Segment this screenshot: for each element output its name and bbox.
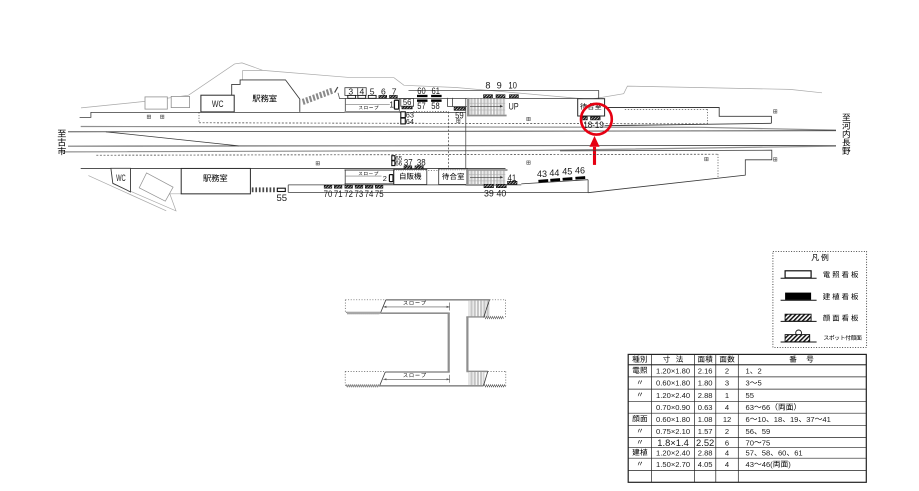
svg-text:6: 6	[746, 415, 750, 424]
svg-text:39: 39	[484, 188, 494, 198]
svg-text:10: 10	[757, 415, 765, 424]
svg-text:12: 12	[723, 415, 731, 424]
svg-text:4: 4	[725, 460, 729, 469]
svg-text:63: 63	[746, 403, 754, 412]
svg-text:3: 3	[725, 379, 729, 388]
svg-text:1: 1	[746, 367, 750, 376]
svg-text:60: 60	[778, 449, 786, 458]
svg-text:61: 61	[794, 449, 802, 458]
svg-text:0.63: 0.63	[698, 403, 713, 412]
svg-text:4.05: 4.05	[698, 460, 713, 469]
svg-text:44: 44	[549, 168, 559, 178]
svg-text:18-19: 18-19	[583, 119, 604, 130]
svg-text:70: 70	[324, 189, 333, 199]
svg-text:3: 3	[746, 379, 750, 388]
svg-text:66: 66	[762, 403, 770, 412]
svg-text:59: 59	[762, 427, 770, 436]
svg-text:4: 4	[725, 449, 729, 458]
svg-text:10: 10	[508, 80, 517, 90]
svg-text:2: 2	[757, 367, 761, 376]
svg-text:0.60×1.80: 0.60×1.80	[656, 415, 690, 424]
svg-text:0.70×0.90: 0.70×0.90	[656, 403, 690, 412]
svg-text:6: 6	[725, 438, 729, 447]
svg-text:1.80: 1.80	[698, 379, 713, 388]
svg-text:WC: WC	[212, 99, 224, 109]
svg-text:1.08: 1.08	[698, 415, 713, 424]
svg-text:5: 5	[757, 379, 761, 388]
svg-text:1.57: 1.57	[698, 427, 713, 436]
svg-text:2.88: 2.88	[698, 449, 713, 458]
svg-text:1.50×2.70: 1.50×2.70	[656, 460, 690, 469]
svg-text:56: 56	[403, 98, 412, 107]
svg-text:1.8×1.4: 1.8×1.4	[657, 437, 689, 448]
svg-text:1.20×2.40: 1.20×2.40	[656, 391, 690, 400]
svg-text:57: 57	[746, 449, 754, 458]
svg-text:1.20×1.80: 1.20×1.80	[656, 367, 690, 376]
svg-text:58: 58	[431, 101, 439, 111]
svg-text:WC: WC	[116, 173, 126, 183]
svg-text:46: 46	[575, 165, 585, 175]
svg-text:70: 70	[746, 438, 754, 447]
svg-text:45: 45	[562, 167, 572, 177]
svg-text:9: 9	[497, 80, 502, 90]
svg-text:0.60×1.80: 0.60×1.80	[656, 379, 690, 388]
svg-text:43: 43	[746, 460, 754, 469]
svg-text:43: 43	[537, 169, 547, 179]
svg-text:2: 2	[725, 367, 729, 376]
svg-text:61: 61	[432, 86, 440, 96]
svg-text:55: 55	[746, 391, 754, 400]
svg-text:75: 75	[375, 189, 384, 199]
svg-text:UP: UP	[509, 102, 519, 112]
svg-text:18: 18	[774, 415, 782, 424]
svg-text:71: 71	[334, 189, 343, 199]
svg-text:2.52: 2.52	[696, 437, 714, 448]
svg-text:57: 57	[417, 101, 425, 111]
svg-text:73: 73	[355, 189, 364, 199]
svg-text:0.75×2.10: 0.75×2.10	[656, 427, 690, 436]
svg-text:58: 58	[762, 449, 770, 458]
svg-text:74: 74	[365, 189, 374, 199]
svg-text:1: 1	[389, 100, 394, 109]
svg-text:2: 2	[725, 427, 729, 436]
svg-text:55: 55	[277, 193, 288, 203]
svg-text:41: 41	[822, 415, 830, 424]
svg-text:64: 64	[406, 117, 414, 126]
svg-text:1.20×2.40: 1.20×2.40	[656, 449, 690, 458]
svg-text:72: 72	[344, 189, 353, 199]
svg-text:2.88: 2.88	[698, 391, 713, 400]
svg-text:56: 56	[746, 427, 754, 436]
svg-text:2: 2	[383, 174, 387, 183]
svg-text:1: 1	[725, 391, 729, 400]
svg-text:4: 4	[725, 403, 729, 412]
svg-text:): )	[788, 460, 791, 469]
svg-text:37: 37	[806, 415, 814, 424]
svg-text:60: 60	[417, 86, 425, 96]
svg-text:75: 75	[762, 438, 770, 447]
svg-text:66: 66	[395, 161, 402, 168]
svg-text:40: 40	[497, 188, 507, 198]
svg-text:46(: 46(	[762, 460, 773, 469]
svg-text:8: 8	[485, 80, 490, 90]
svg-text:2.16: 2.16	[698, 367, 713, 376]
svg-text:19: 19	[790, 415, 798, 424]
